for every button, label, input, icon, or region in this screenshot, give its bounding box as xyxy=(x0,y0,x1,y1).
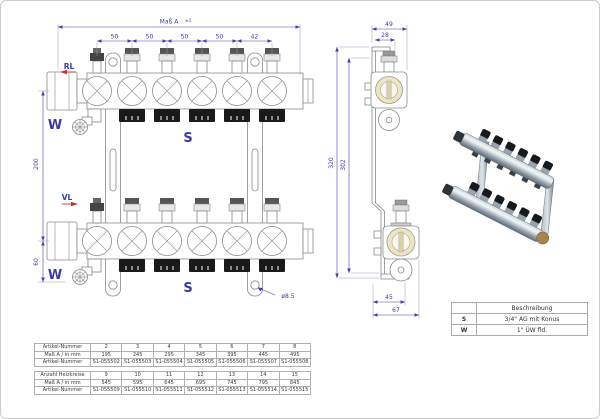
legend-row-w: W 1" ÜW fld. xyxy=(452,325,588,336)
table-row: Maß A / in mm 195 245 295 345 395 445 49… xyxy=(35,351,311,359)
cell: S1-055505 xyxy=(185,359,216,367)
row-label: Maß A / in mm xyxy=(35,351,91,359)
legend-value-w: 1" ÜW fld. xyxy=(477,325,588,336)
dim-mass-a-tolerance: ±1 xyxy=(185,18,192,24)
valve-body xyxy=(83,77,112,106)
valve-body xyxy=(223,77,252,106)
hole-callout: ø8.5 xyxy=(258,288,295,301)
valve-body xyxy=(188,77,217,106)
dim-49: 49 xyxy=(385,21,393,28)
legend-key-s: S xyxy=(452,314,477,325)
cell: S1-055510 xyxy=(122,387,153,395)
euroconus-socket xyxy=(259,109,285,122)
legend-header-row: Beschreibung xyxy=(452,303,588,314)
union-nut xyxy=(47,72,77,110)
row-label: Maß A / in mm xyxy=(35,379,91,387)
legend-row-s: S 3/4" AG mit Konus xyxy=(452,314,588,325)
legend-table: Beschreibung S 3/4" AG mit Konus W 1" ÜW… xyxy=(451,302,588,336)
cell: 10 xyxy=(122,372,153,380)
legend-key-w: W xyxy=(452,325,477,336)
drain-valve xyxy=(73,109,102,135)
euroconus-socket xyxy=(119,109,145,122)
cell: 495 xyxy=(279,351,310,359)
dim-320: 320 xyxy=(328,157,335,169)
table-row: Artikel-Nummer 2 3 4 5 6 7 8 xyxy=(35,344,311,352)
legend-value-s: 3/4" AG mit Konus xyxy=(477,314,588,325)
pipe-section xyxy=(390,259,412,281)
cell: S1-055508 xyxy=(279,359,310,367)
cell: 7 xyxy=(248,344,279,352)
bracket-hole-top xyxy=(109,58,117,66)
table-row: Maß A / in mm 545 595 645 695 745 795 84… xyxy=(35,379,311,387)
cell: S1-055512 xyxy=(185,387,216,395)
cell: 745 xyxy=(216,379,247,387)
cell: 11 xyxy=(153,372,184,380)
cell: S1-055502 xyxy=(91,359,122,367)
return-label: RL xyxy=(64,62,75,71)
cell: 595 xyxy=(122,379,153,387)
dim-50: 50 xyxy=(146,34,154,41)
row-label: Artikel-Nummer xyxy=(35,344,91,352)
spec-table-2: Anzahl Heizkreise 9 10 11 12 13 14 15 Ma… xyxy=(34,371,311,395)
cell: 795 xyxy=(248,379,279,387)
cell: 8 xyxy=(279,344,310,352)
dim-port-spacing: 50 50 50 50 42 xyxy=(97,34,272,57)
cell: 13 xyxy=(216,372,247,380)
table-row: Artikel-Nummer S1-055509 S1-055510 S1-05… xyxy=(35,387,311,395)
flow-label: VL xyxy=(62,193,73,202)
cell: 345 xyxy=(185,351,216,359)
legend-title: Beschreibung xyxy=(477,303,588,314)
manifold-bar xyxy=(47,48,313,135)
cell: 14 xyxy=(248,372,279,380)
side-view: 49 28 320 302 45 67 xyxy=(328,21,419,318)
cell: S1-055513 xyxy=(216,387,247,395)
cell: 195 xyxy=(91,351,122,359)
cell: 395 xyxy=(216,351,247,359)
cell: S1-055503 xyxy=(122,359,153,367)
dim-50: 50 xyxy=(181,34,189,41)
cell: 295 xyxy=(153,351,184,359)
dim-28: 28 xyxy=(381,32,389,39)
dim-50: 50 xyxy=(111,34,119,41)
legend-key-blank xyxy=(452,303,477,314)
cell: S1-055515 xyxy=(279,387,310,395)
dim-45: 45 xyxy=(385,294,393,301)
table-row: Anzahl Heizkreise 9 10 11 12 13 14 15 xyxy=(35,372,311,380)
valve-body xyxy=(153,77,182,106)
photo-bar-top xyxy=(450,118,560,193)
dim-60: 60 xyxy=(33,258,40,266)
cell: S1-055514 xyxy=(248,387,279,395)
euroconus-socket xyxy=(154,109,180,122)
dim-42: 42 xyxy=(251,34,259,41)
row-label: Anzahl Heizkreise xyxy=(35,372,91,380)
cell: S1-055509 xyxy=(91,387,122,395)
dim-67: 67 xyxy=(392,307,400,314)
cell: 445 xyxy=(248,351,279,359)
valve-body xyxy=(258,77,287,106)
cell: 645 xyxy=(153,379,184,387)
cell: S1-055504 xyxy=(153,359,184,367)
cell: 9 xyxy=(91,372,122,380)
cell: 6 xyxy=(216,344,247,352)
cell: 2 xyxy=(91,344,122,352)
bracket-top-tab xyxy=(372,47,390,51)
dim-50: 50 xyxy=(216,34,224,41)
cell: 5 xyxy=(185,344,216,352)
cell: 695 xyxy=(185,379,216,387)
cell: 12 xyxy=(185,372,216,380)
dim-302: 302 xyxy=(340,159,347,171)
euroconus-socket xyxy=(189,109,215,122)
cell: 3 xyxy=(122,344,153,352)
spec-table-1: Artikel-Nummer 2 3 4 5 6 7 8 Maß A / in … xyxy=(34,343,311,367)
w-label-top: W xyxy=(48,118,62,133)
s-label-top: S xyxy=(183,131,192,146)
dim-mass-a: Maß A xyxy=(160,19,180,26)
flow-arrow xyxy=(62,202,78,206)
pipe-section xyxy=(379,110,400,131)
datasheet-page: Maß A ±1 50 50 50 50 42 200 6 xyxy=(0,0,600,419)
dim-hole-diameter: ø8.5 xyxy=(281,293,294,300)
row-label: Artikel-Nummer xyxy=(35,387,91,395)
s-label-bottom: S xyxy=(183,281,192,296)
euroconus-socket xyxy=(224,109,250,122)
row-label: Artikel-Nummer xyxy=(35,359,91,367)
valve-body xyxy=(118,77,147,106)
dim-200: 200 xyxy=(33,158,40,170)
w-label-bottom: W xyxy=(48,268,62,283)
cell: S1-055506 xyxy=(216,359,247,367)
front-view: Maß A ±1 50 50 50 50 42 200 6 xyxy=(33,18,313,300)
cell: 4 xyxy=(153,344,184,352)
table-row: Artikel-Nummer S1-055502 S1-055503 S1-05… xyxy=(35,359,311,367)
flowmeter-valve-lower xyxy=(383,200,419,281)
bracket-hole-bottom xyxy=(109,281,117,289)
cell: S1-055507 xyxy=(248,359,279,367)
product-photo xyxy=(441,118,560,246)
cell: S1-055511 xyxy=(153,387,184,395)
cell: 845 xyxy=(279,379,310,387)
cell: 15 xyxy=(279,372,310,380)
bracket-slot xyxy=(110,149,116,191)
cell: 545 xyxy=(91,379,122,387)
flowmeter-valve-upper xyxy=(371,51,407,131)
cell: 245 xyxy=(122,351,153,359)
